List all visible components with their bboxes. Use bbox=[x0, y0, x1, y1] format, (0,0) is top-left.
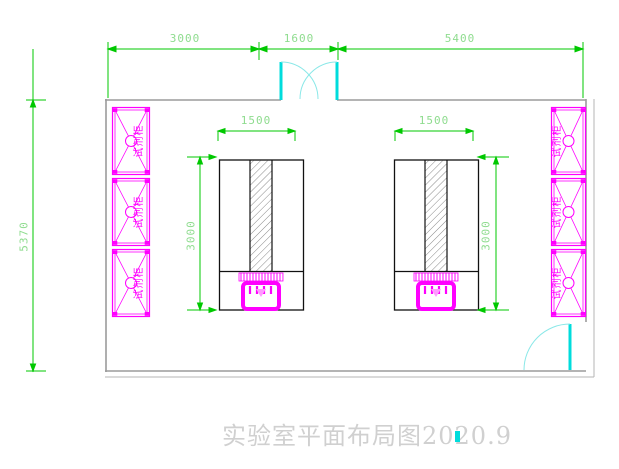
cabinet-label: 试剂柜 bbox=[134, 111, 146, 171]
cabinet-label: 试剂柜 bbox=[134, 253, 146, 313]
dim-label-bench-right-depth: 3000 bbox=[480, 206, 493, 266]
floor-plan-canvas: 3000 1600 5400 5370 1500 1500 3000 3000 … bbox=[0, 0, 619, 469]
cabinet-label: 试剂柜 bbox=[552, 111, 564, 171]
dim-label-left-total: 5370 bbox=[18, 202, 31, 272]
dim-label-top-2: 1600 bbox=[264, 32, 334, 45]
floor-plan-linework bbox=[0, 0, 619, 469]
cabinet-label: 试剂柜 bbox=[552, 182, 564, 242]
cabinet-label: 试剂柜 bbox=[552, 253, 564, 313]
text-cursor-mark bbox=[455, 431, 460, 442]
bench-sink-left bbox=[239, 273, 283, 309]
dim-label-top-1: 3000 bbox=[150, 32, 220, 45]
door-swing-arc bbox=[300, 62, 337, 99]
drawing-title: 实验室平面布局图2020.9 bbox=[222, 416, 472, 451]
dim-label-bench-left-width: 1500 bbox=[226, 114, 286, 127]
dim-label-bench-right-width: 1500 bbox=[404, 114, 464, 127]
bench-sink-right bbox=[414, 273, 458, 309]
door-swing-arc bbox=[281, 62, 318, 99]
room-walls bbox=[105, 99, 594, 377]
dimension-lines bbox=[26, 42, 583, 372]
dim-label-top-3: 5400 bbox=[425, 32, 495, 45]
reagent-cabinets bbox=[113, 108, 586, 317]
lab-benches bbox=[220, 160, 479, 310]
cabinet-label: 试剂柜 bbox=[134, 182, 146, 242]
dim-label-bench-left-depth: 3000 bbox=[185, 206, 198, 266]
door-swing-arc bbox=[524, 324, 570, 370]
